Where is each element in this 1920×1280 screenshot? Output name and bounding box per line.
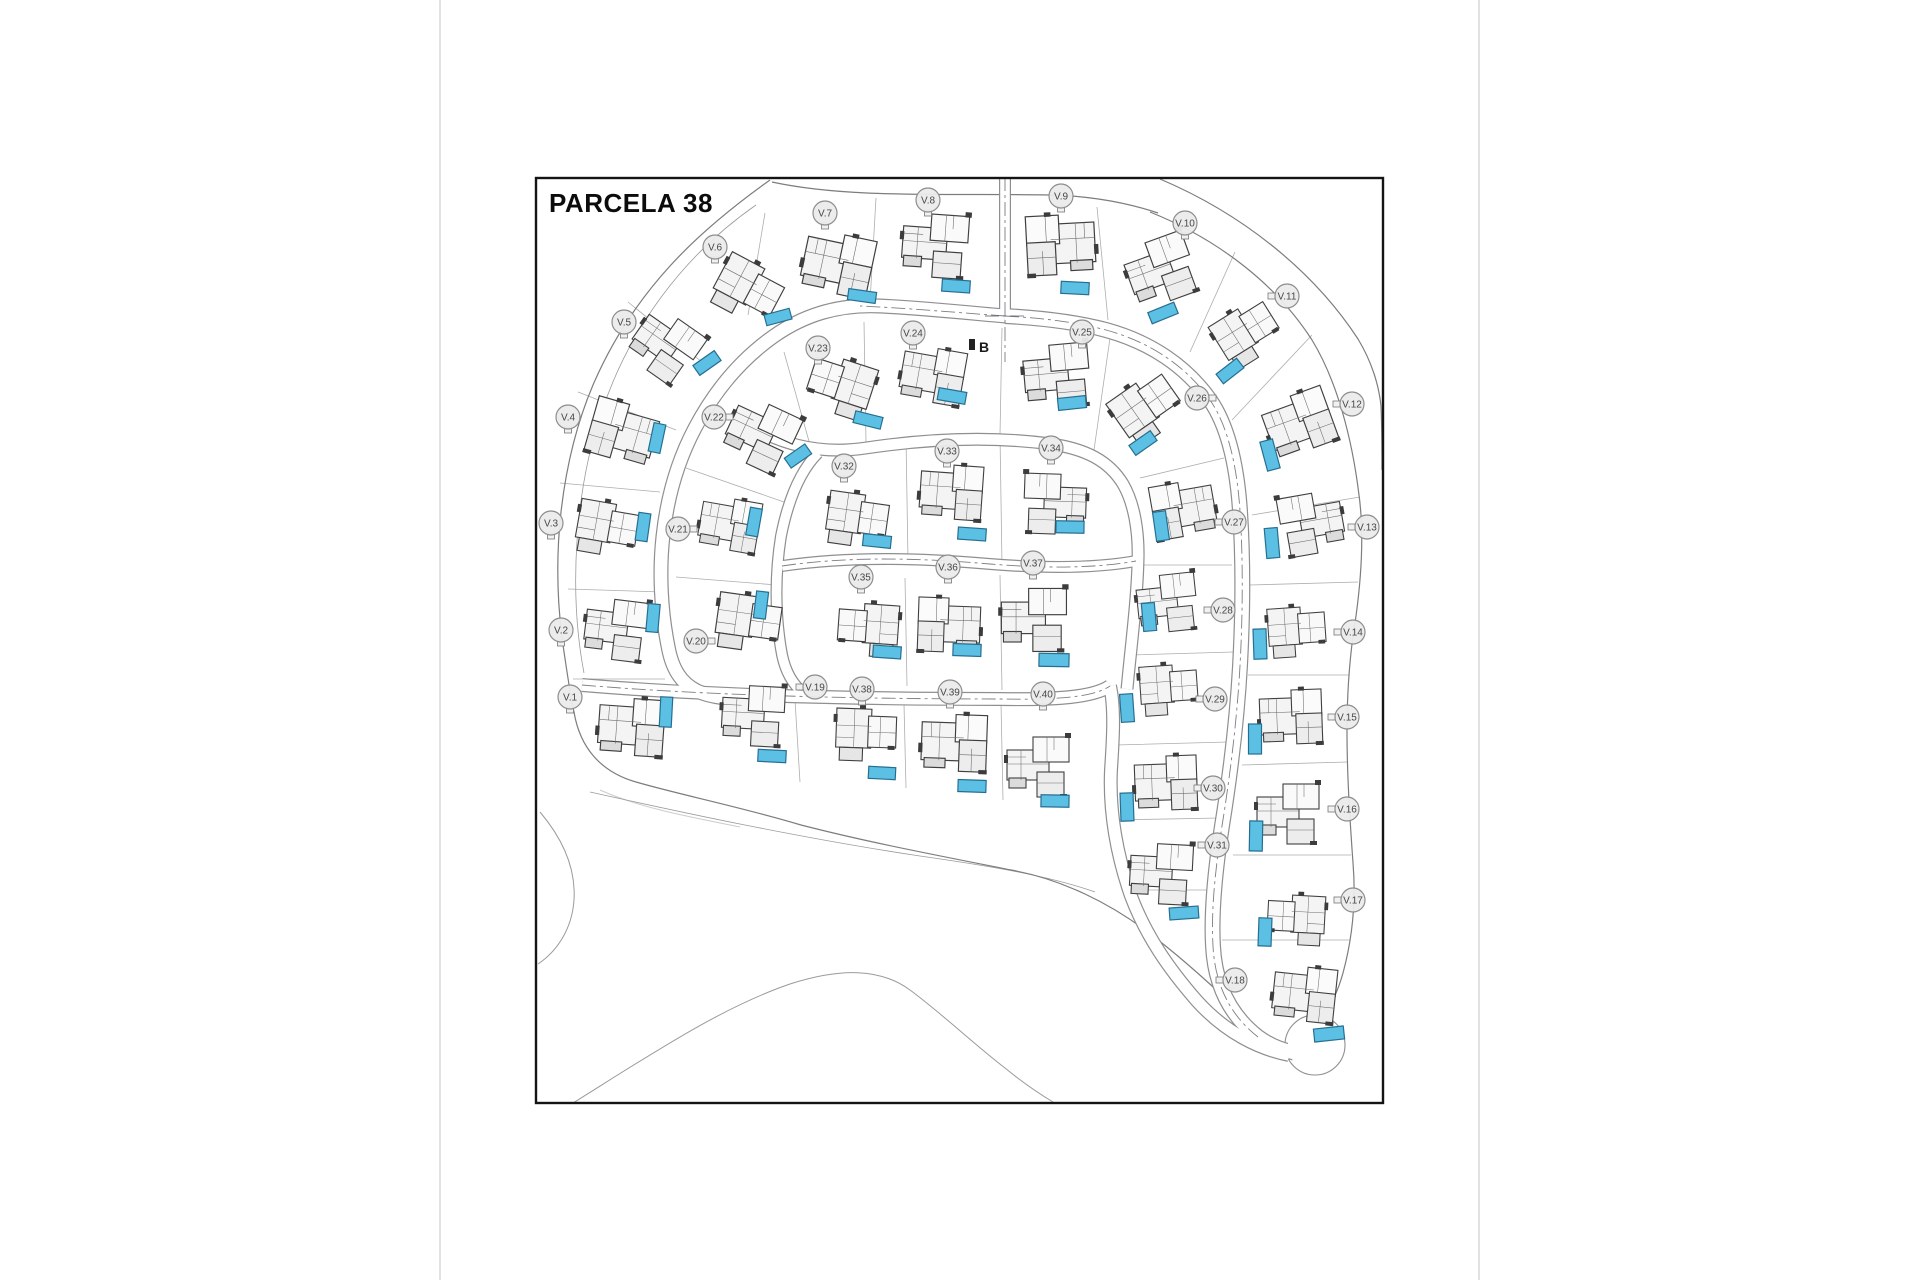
villa-V.23: V.23 (802, 336, 883, 429)
plot-label-V.4: V.4 (556, 405, 580, 433)
villa-V.10: V.10 (1115, 211, 1204, 324)
pool-V.36 (953, 644, 981, 657)
plot-label-V.23: V.23 (806, 336, 830, 364)
plot-label-V.17: V.17 (1334, 888, 1365, 912)
villa-V.25: V.25 (1018, 320, 1094, 412)
label-text: V.34 (1041, 444, 1061, 455)
villa-V.30: V.30 (1120, 752, 1225, 821)
plot-label-V.8: V.8 (916, 188, 940, 216)
villa-V.24: V.24 (894, 321, 969, 409)
plot-label-V.9: V.9 (1049, 184, 1073, 212)
plot-label-V.29: V.29 (1196, 687, 1227, 711)
pool-V.32 (862, 534, 891, 549)
label-text: V.38 (852, 685, 872, 696)
label-text: V.25 (1072, 328, 1092, 339)
villa-V.4: V.4 (556, 392, 666, 471)
label-text: V.14 (1343, 628, 1363, 639)
pool-V.18 (1313, 1026, 1344, 1042)
pool-V.38 (868, 766, 896, 779)
label-leader-square (1198, 842, 1205, 848)
label-text: V.40 (1033, 690, 1053, 701)
label-text: V.27 (1224, 518, 1244, 529)
plot-label-V.32: V.32 (832, 454, 856, 482)
pool-V.33 (958, 527, 987, 541)
villa-V.15: V.15 (1249, 686, 1360, 754)
house-footprint (915, 460, 985, 523)
pool-V.23 (853, 411, 883, 429)
label-text: V.22 (704, 413, 724, 424)
pool-V.37 (1039, 653, 1069, 667)
plot-label-V.6: V.6 (703, 235, 727, 263)
plot-label-V.27: V.27 (1215, 510, 1246, 534)
pool-V.9 (1061, 281, 1090, 294)
pool-V.10 (1148, 302, 1178, 324)
label-text: V.9 (1054, 192, 1069, 203)
house-footprint (1254, 780, 1321, 845)
plot-label-V.22: V.22 (702, 405, 733, 429)
house-footprint (897, 208, 972, 281)
pool-V.34 (1056, 521, 1084, 533)
label-text: V.29 (1205, 695, 1225, 706)
pool-V.35 (873, 645, 902, 659)
section-marker-label: B (979, 339, 989, 355)
villa-V.29: V.29 (1120, 660, 1227, 723)
label-text: V.16 (1337, 805, 1357, 816)
plot-label-V.15: V.15 (1328, 705, 1359, 729)
plot-label-V.11: V.11 (1268, 284, 1299, 308)
plan-title: PARCELA 38 (549, 188, 713, 218)
pool-V.19 (758, 749, 787, 762)
villa-V.36: V.36 (916, 555, 984, 656)
label-leader-square (1215, 519, 1222, 525)
plot-label-V.24: V.24 (901, 321, 925, 349)
label-text: V.11 (1278, 292, 1297, 303)
villa-V.32: V.32 (821, 454, 892, 550)
label-text: V.20 (686, 637, 706, 648)
label-text: V.5 (617, 318, 632, 329)
label-text: V.33 (937, 447, 957, 458)
villa-V.17: V.17 (1258, 888, 1365, 946)
plot-label-V.14: V.14 (1334, 620, 1365, 644)
house-footprint (1256, 686, 1324, 747)
label-leader-square (1209, 395, 1216, 401)
label-leader-square (1333, 401, 1340, 407)
label-text: V.17 (1343, 896, 1363, 907)
label-text: V.32 (834, 462, 854, 473)
drawing-page: V.1V.2V.3V.4V.5V.6V.7V.8V.9V.10V.11V.12V… (0, 0, 1920, 1280)
label-text: V.23 (808, 344, 828, 355)
plot-label-V.16: V.16 (1328, 797, 1359, 821)
house-footprint (1115, 225, 1204, 313)
site-plan: V.1V.2V.3V.4V.5V.6V.7V.8V.9V.10V.11V.12V… (0, 0, 1920, 1280)
label-text: V.2 (554, 626, 569, 637)
villa-V.8: V.8 (897, 188, 972, 293)
label-leader-square (796, 684, 803, 690)
label-leader-square (1328, 714, 1335, 720)
house-footprint (1004, 733, 1071, 798)
villa-V.5: V.5 (612, 299, 721, 391)
pool-V.17 (1258, 918, 1272, 946)
pool-V.8 (942, 279, 971, 293)
pool-V.20 (753, 591, 768, 619)
pool-V.39 (958, 780, 986, 793)
plot-label-V.30: V.30 (1194, 776, 1225, 800)
label-leader-square (1194, 785, 1201, 791)
pool-V.2 (646, 604, 660, 633)
pool-V.29 (1120, 694, 1135, 723)
label-leader-square (1334, 897, 1341, 903)
pool-V.13 (1264, 527, 1280, 558)
label-leader-square (1328, 806, 1335, 812)
label-text: V.21 (668, 525, 688, 536)
label-leader-square (1204, 607, 1211, 613)
label-text: V.26 (1187, 394, 1207, 405)
label-text: V.13 (1357, 523, 1377, 534)
label-text: V.4 (561, 413, 576, 424)
villa-V.16: V.16 (1249, 780, 1359, 851)
villa-V.35: V.35 (836, 565, 903, 659)
villa-V.9: V.9 (1024, 184, 1100, 295)
label-text: V.6 (708, 243, 723, 254)
label-text: V.19 (805, 683, 825, 694)
label-leader-square (1268, 293, 1275, 299)
label-text: V.36 (938, 563, 958, 574)
label-leader-square (1348, 524, 1355, 530)
pool-V.25 (1057, 396, 1086, 411)
villa-V.33: V.33 (915, 439, 986, 541)
villa-V.20: V.20 (684, 587, 784, 654)
plot-label-V.36: V.36 (936, 555, 960, 583)
label-text: V.10 (1175, 219, 1195, 230)
label-text: V.1 (563, 693, 578, 704)
plot-label-V.31: V.31 (1198, 833, 1229, 857)
house-footprint (593, 693, 666, 760)
pool-V.14 (1253, 629, 1267, 659)
label-text: V.39 (940, 688, 960, 699)
pool-V.16 (1249, 821, 1263, 851)
label-text: V.35 (851, 573, 871, 584)
pool-V.31 (1169, 906, 1199, 920)
pool-V.1 (659, 697, 673, 728)
label-text: V.24 (903, 329, 923, 340)
plot-label-V.5: V.5 (612, 310, 636, 338)
section-cut-mark (969, 339, 975, 350)
plot-label-V.37: V.37 (1021, 551, 1045, 579)
terrain-contours (538, 790, 1053, 1103)
label-leader-square (1334, 629, 1341, 635)
label-text: V.18 (1225, 976, 1245, 987)
plot-label-V.2: V.2 (549, 618, 573, 646)
plot-label-V.35: V.35 (849, 565, 873, 593)
villa-V.7: V.7 (794, 201, 879, 303)
label-leader-square (1196, 696, 1203, 702)
label-text: V.37 (1023, 559, 1043, 570)
house-footprint (1264, 602, 1327, 659)
plot-label-V.20: V.20 (684, 629, 715, 653)
label-text: V.31 (1207, 841, 1227, 852)
villa-V.11: V.11 (1203, 284, 1299, 384)
plot-label-V.34: V.34 (1039, 436, 1063, 464)
plot-label-V.28: V.28 (1204, 598, 1235, 622)
plot-label-V.1: V.1 (558, 685, 582, 713)
house-footprint (570, 494, 642, 560)
house-footprint (1203, 292, 1286, 373)
plot-label-V.21: V.21 (666, 517, 697, 541)
villa-V.21: V.21 (666, 491, 764, 557)
label-text: V.12 (1342, 400, 1362, 411)
label-text: V.28 (1213, 606, 1233, 617)
villa-V.6: V.6 (703, 235, 792, 329)
house-footprint (1136, 660, 1199, 717)
label-leader-square (1216, 977, 1223, 983)
label-text: V.30 (1203, 784, 1223, 795)
house-footprint (1131, 752, 1199, 813)
plot-label-V.33: V.33 (935, 439, 959, 467)
pool-V.15 (1249, 724, 1262, 754)
house-footprint (998, 584, 1068, 652)
label-text: V.15 (1337, 713, 1357, 724)
label-leader-square (690, 526, 697, 532)
house-footprint (1266, 890, 1329, 946)
label-leader-square (708, 638, 715, 644)
label-text: V.8 (921, 196, 936, 207)
villa-V.12: V.12 (1255, 382, 1364, 471)
label-text: V.7 (818, 209, 833, 220)
house-footprint (1273, 484, 1350, 560)
label-leader-square (726, 414, 733, 420)
plot-label-V.7: V.7 (813, 201, 837, 229)
plot-label-V.13: V.13 (1348, 515, 1379, 539)
villa-V.28: V.28 (1132, 568, 1235, 636)
pool-V.28 (1141, 602, 1156, 631)
label-text: V.3 (544, 519, 559, 530)
villa-V.14: V.14 (1253, 602, 1365, 660)
house-footprint (1267, 961, 1339, 1027)
house-footprint (579, 592, 653, 665)
pool-V.11 (1216, 358, 1244, 383)
pool-V.30 (1120, 793, 1134, 821)
pool-V.40 (1041, 795, 1069, 807)
villa-V.2: V.2 (549, 592, 660, 665)
villa-V.3: V.3 (539, 494, 651, 560)
house-footprint (832, 704, 897, 762)
house-footprint (917, 710, 988, 774)
house-footprint (1024, 210, 1100, 279)
